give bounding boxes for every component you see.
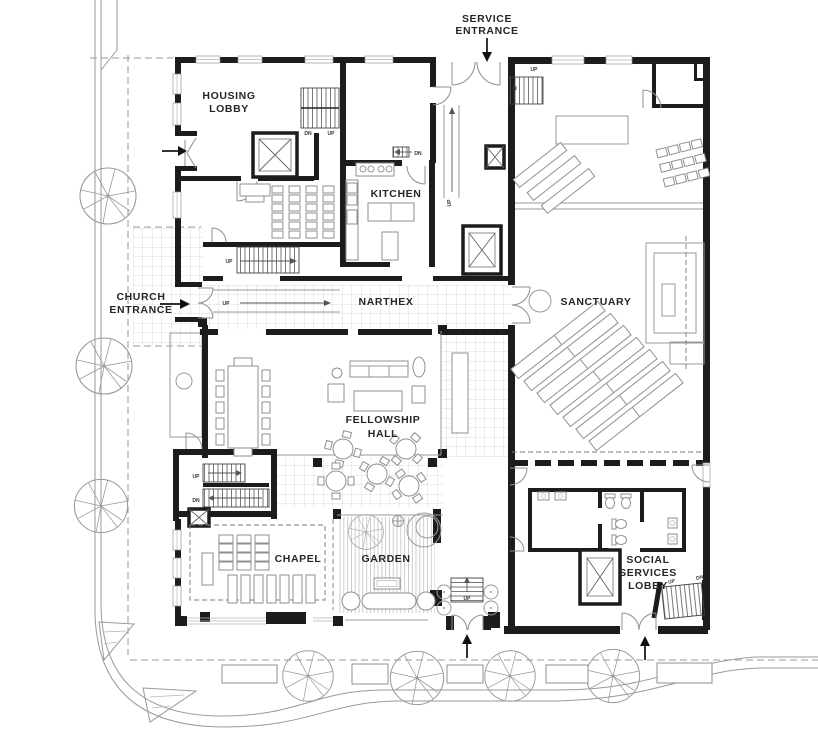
ramp-up-label: UP bbox=[223, 301, 231, 307]
reception-desk bbox=[240, 184, 270, 196]
garden-entrance-arrow bbox=[462, 634, 472, 658]
tree bbox=[390, 651, 443, 704]
altar-platform bbox=[646, 236, 704, 372]
garden-label: GARDEN bbox=[361, 553, 410, 565]
lounge-set bbox=[328, 357, 425, 411]
tree bbox=[283, 651, 333, 701]
stair-up-label: UP bbox=[328, 131, 336, 137]
lectern bbox=[202, 553, 213, 585]
chapel-chairs bbox=[219, 535, 269, 570]
baptismal-font bbox=[529, 290, 551, 312]
fellowship-hall-label-2: HALL bbox=[368, 428, 398, 440]
chapel-benches bbox=[228, 575, 315, 603]
ramp-up-label: UP bbox=[464, 596, 472, 602]
stair-dn-label: DN bbox=[304, 131, 312, 137]
social-entrance-arrow bbox=[640, 636, 650, 660]
fellowship-hall-label: FELLOWSHIP bbox=[346, 414, 421, 426]
rear-chair-rows bbox=[656, 139, 710, 187]
fellowship-furniture bbox=[216, 331, 468, 456]
tree bbox=[76, 338, 132, 394]
chapel-label: CHAPEL bbox=[275, 553, 322, 565]
sofa bbox=[350, 361, 408, 377]
ramp-up-label: UP bbox=[447, 199, 453, 207]
church-entrance-label-2: ENTRANCE bbox=[109, 304, 172, 316]
armchair bbox=[328, 384, 344, 402]
social-services-label-2: SERVICES bbox=[619, 567, 677, 579]
housing-interior bbox=[240, 184, 334, 238]
sanctuary-pews bbox=[511, 301, 683, 450]
toilet bbox=[612, 535, 627, 545]
sink bbox=[668, 534, 677, 544]
stair-up-label: UP bbox=[226, 259, 234, 265]
narthex-paving bbox=[203, 285, 512, 329]
sanctuary-interior bbox=[511, 116, 710, 451]
west-porch bbox=[170, 333, 202, 437]
social-elevator bbox=[580, 550, 620, 604]
church-entrance-label: CHURCH bbox=[116, 291, 165, 303]
service-entrance-door bbox=[452, 62, 475, 85]
kitchen-fixtures bbox=[346, 163, 414, 260]
kitchen-label: KITCHEN bbox=[371, 188, 422, 200]
stair-up-label: UP bbox=[668, 578, 677, 586]
housing-lobby-label-2: LOBBY bbox=[209, 103, 249, 115]
garden-ornament bbox=[393, 516, 404, 527]
toilet bbox=[605, 494, 615, 509]
sanctuary-door bbox=[512, 287, 530, 305]
coffee-table bbox=[354, 391, 402, 411]
garden-bench bbox=[362, 593, 416, 609]
housing-elevator bbox=[253, 133, 297, 177]
gallery-bench bbox=[452, 353, 468, 433]
sanctuary-label: SANCTUARY bbox=[561, 296, 632, 308]
sanctuary-stage bbox=[556, 116, 628, 144]
service-entrance-label-2: ENTRANCE bbox=[455, 25, 518, 37]
social-services-label: SOCIAL bbox=[626, 554, 669, 566]
tree bbox=[586, 649, 639, 702]
stair-dn-label: DN bbox=[192, 498, 200, 504]
bathroom-fixtures bbox=[538, 492, 677, 545]
tree bbox=[80, 168, 136, 224]
sink bbox=[538, 492, 549, 500]
service-entrance-arrow bbox=[482, 38, 492, 62]
sink bbox=[555, 492, 566, 500]
small-shaft bbox=[486, 146, 504, 168]
service-elevator bbox=[463, 226, 501, 274]
service-entrance-label: SERVICE bbox=[462, 13, 512, 25]
social-services-label-3: LOBBY bbox=[628, 580, 668, 592]
garden-entrance-door bbox=[452, 615, 467, 630]
stair-dn-label: DN bbox=[414, 151, 422, 157]
social-services-entrance-door bbox=[622, 613, 639, 630]
narthex-label: NARTHEX bbox=[359, 296, 414, 308]
housing-entrance-door bbox=[185, 138, 196, 168]
floor-plan-drawing: DN UP UP DN DN UP UP UP UP DN bbox=[0, 0, 818, 749]
dining-chairs bbox=[272, 186, 334, 238]
dining-table bbox=[228, 366, 258, 448]
stair-dn-label: DN bbox=[509, 86, 517, 92]
sink bbox=[668, 518, 677, 528]
tree bbox=[485, 651, 535, 701]
stair-up-label: UP bbox=[531, 67, 539, 73]
service-ramp: UP bbox=[444, 105, 459, 206]
stair-up-label: UP bbox=[193, 474, 201, 480]
hall-stair: UP bbox=[226, 247, 299, 273]
garden-entry-ramp: UP bbox=[451, 577, 483, 602]
floor-plan-page: DN UP UP DN DN UP UP UP UP DN bbox=[0, 0, 818, 749]
social-stair: UP DN bbox=[661, 574, 704, 619]
planter bbox=[374, 578, 400, 589]
housing-lobby-label: HOUSING bbox=[202, 90, 255, 102]
kitchen-stair: DN bbox=[393, 147, 422, 157]
housing-entrance-arrow bbox=[162, 146, 187, 156]
housing-stair: DN UP bbox=[301, 88, 339, 137]
chapel-shaft bbox=[189, 509, 209, 526]
toilet bbox=[612, 519, 627, 529]
toilet bbox=[621, 494, 631, 509]
